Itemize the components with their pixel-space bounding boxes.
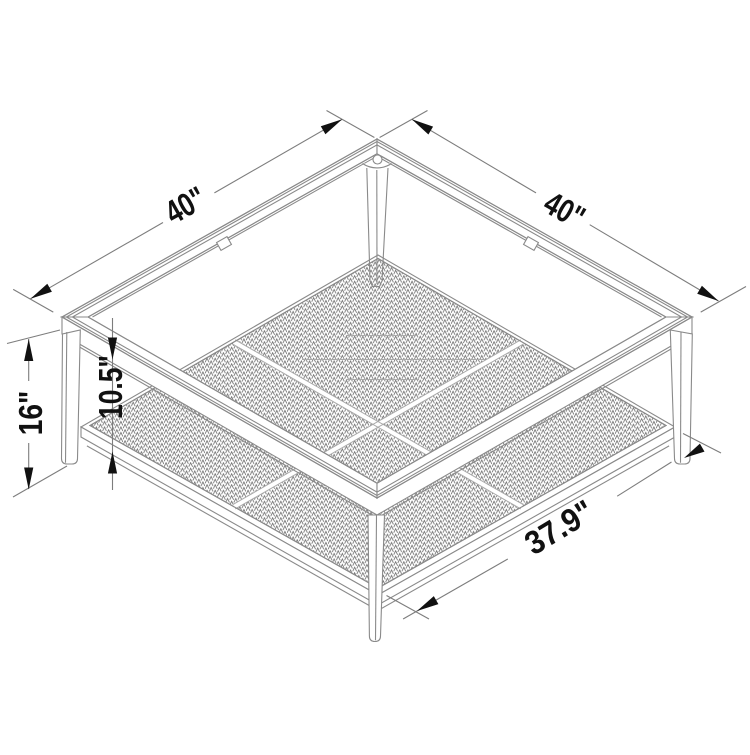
svg-text:16": 16" [13,391,50,435]
svg-text:10.5": 10.5" [93,355,129,419]
